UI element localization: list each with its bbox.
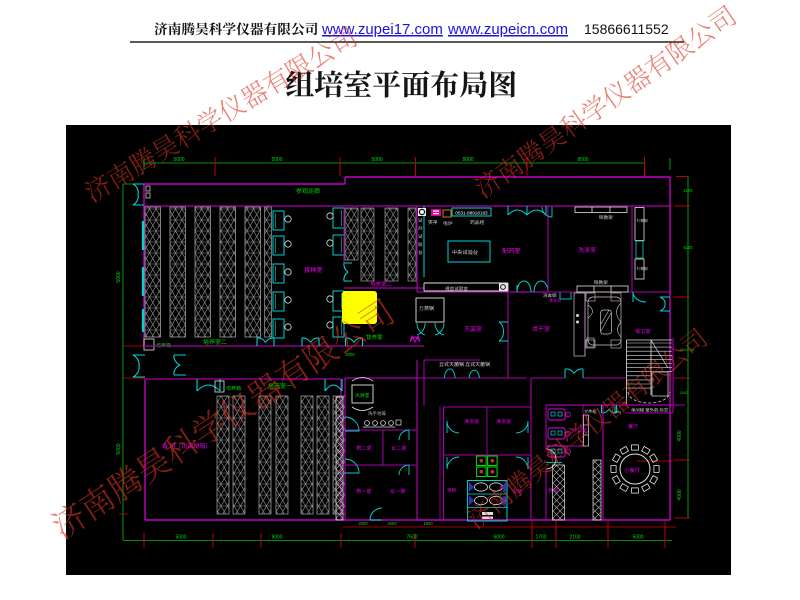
svg-text:6100: 6100	[683, 245, 693, 250]
svg-text:5000: 5000	[371, 157, 382, 163]
svg-text:4000: 4000	[677, 430, 683, 441]
svg-text:3000: 3000	[345, 352, 355, 357]
svg-text:www.zupei17.com: www.zupei17.com	[321, 21, 443, 38]
svg-text:5000: 5000	[175, 535, 186, 541]
svg-text:5000: 5000	[632, 535, 643, 541]
svg-text:5000: 5000	[116, 443, 122, 454]
svg-text:15866611552: 15866611552	[584, 21, 669, 37]
svg-text:9000: 9000	[271, 535, 282, 541]
svg-text:1700: 1700	[535, 535, 546, 541]
svg-text:4000: 4000	[677, 489, 683, 500]
svg-text:7500: 7500	[406, 535, 417, 541]
svg-text:2100: 2100	[569, 535, 580, 541]
svg-text:www.zupeicn.com: www.zupeicn.com	[447, 21, 568, 38]
svg-text:2042: 2042	[680, 390, 690, 395]
svg-text:5000: 5000	[271, 157, 282, 163]
svg-text:8000: 8000	[577, 157, 588, 163]
svg-text:2100: 2100	[683, 188, 693, 193]
svg-text:6000: 6000	[493, 535, 504, 541]
svg-text:2500: 2500	[358, 521, 368, 526]
svg-text:5000: 5000	[116, 271, 122, 282]
svg-text:5000: 5000	[173, 157, 184, 163]
svg-text:8000: 8000	[462, 157, 473, 163]
svg-text:0531-88918183: 0531-88918183	[455, 211, 488, 216]
svg-text:1800: 1800	[423, 521, 433, 526]
svg-text:2500: 2500	[387, 521, 397, 526]
